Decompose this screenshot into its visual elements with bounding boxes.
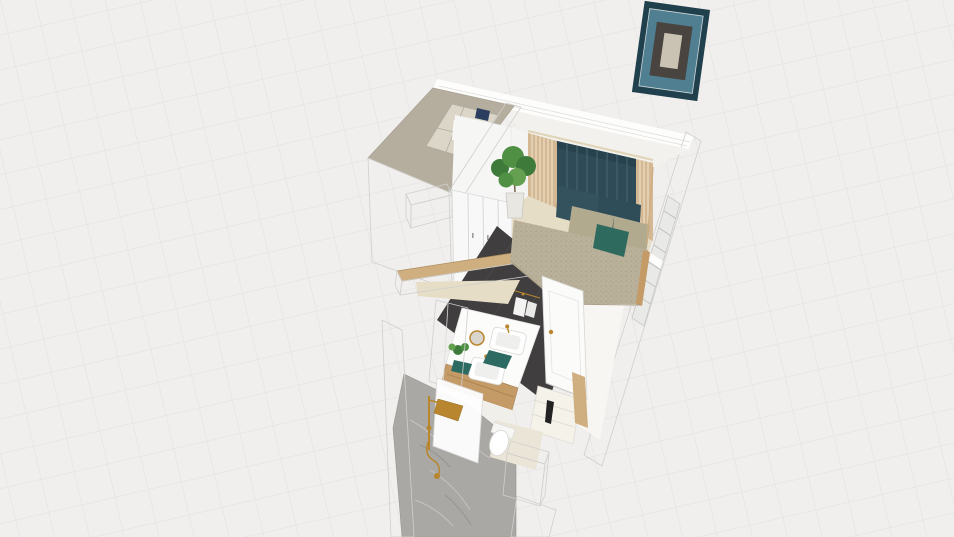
floorplan-3d-canvas[interactable] xyxy=(0,0,954,537)
door-handle-icon xyxy=(549,330,553,334)
wall-art[interactable] xyxy=(632,1,710,101)
shower-valve-icon xyxy=(427,426,432,431)
hand-shower-icon xyxy=(434,473,440,479)
round-brass-mirror[interactable] xyxy=(470,331,484,345)
plant-leaves-5 xyxy=(499,173,514,188)
counter-plant-3 xyxy=(449,344,456,351)
plant-pot xyxy=(506,193,524,218)
door-handle-left xyxy=(472,233,474,238)
towel-hook-icon xyxy=(522,293,525,296)
door-handle-right xyxy=(487,235,489,240)
design-app-viewport xyxy=(0,0,954,537)
